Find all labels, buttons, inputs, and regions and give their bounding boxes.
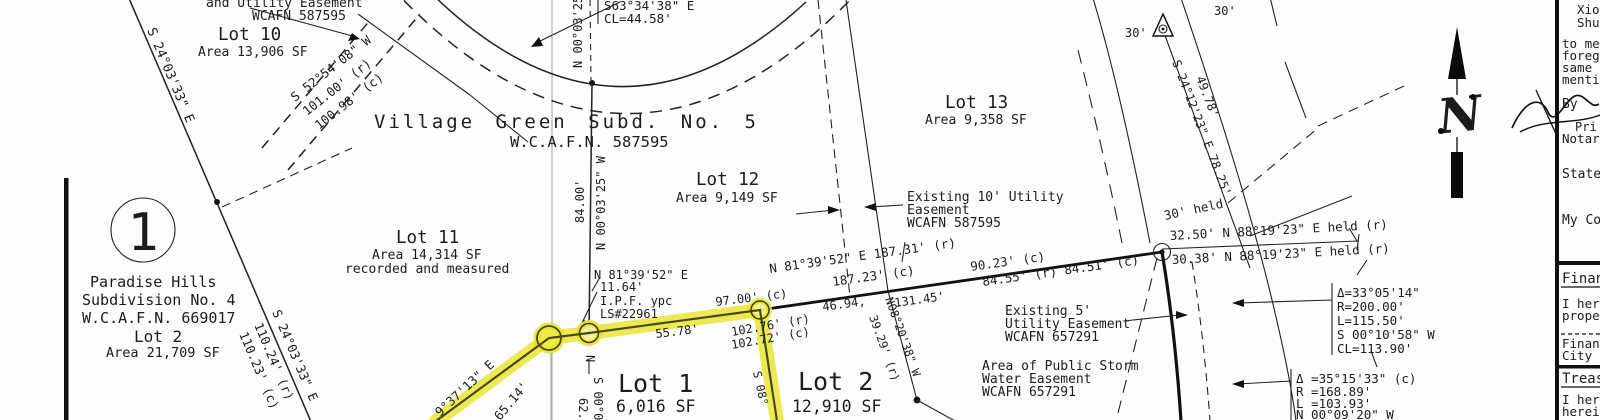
seg-b xyxy=(1285,62,1306,118)
tb-ack-4: menti xyxy=(1562,72,1600,87)
adjacent-area: Area 21,709 SF xyxy=(106,345,220,361)
lot11-note: recorded and measured xyxy=(345,262,509,277)
lot13-area: Area 9,358 SF xyxy=(925,113,1027,128)
left-border-bar xyxy=(64,178,69,420)
north-arrow-flourish-b xyxy=(1438,128,1444,134)
title-block-divider-1 xyxy=(1556,261,1600,265)
curve1-bearing: S 00°10'58" W xyxy=(1337,327,1435,342)
seg-a xyxy=(1270,0,1277,26)
curve1-arrowhead xyxy=(1232,299,1244,307)
dim-11-64: 11.64' xyxy=(600,280,643,294)
storm-line3: WCAFN 657291 xyxy=(982,385,1076,400)
curve-top-chord: CL=44.58' xyxy=(604,11,672,26)
ipf-label1: I.P.F. ypc xyxy=(600,294,672,308)
tb-state-fragment: State xyxy=(1562,167,1600,182)
north-arrow: N xyxy=(1433,27,1487,198)
subdivision-title: Village Green Subd. No. 5 xyxy=(374,111,759,133)
survey-point-dot xyxy=(214,199,220,205)
util10-arrowhead-a xyxy=(828,206,840,214)
radial-arrowhead xyxy=(531,37,543,47)
north-arrow-base-icon xyxy=(1451,152,1463,198)
lot1-name: Lot 1 xyxy=(618,369,693,398)
easement-top-line2: WCAFN 587595 xyxy=(252,9,346,24)
branch-dashed-line xyxy=(222,148,352,207)
monument-triangle-dot xyxy=(1162,28,1165,31)
util5-line3: WCAFN 657291 xyxy=(1005,330,1099,345)
title-block: Xio Shu to me forego same menti By Pri N… xyxy=(1512,0,1600,420)
bearing-n00: N 00°03'25" W xyxy=(594,155,608,250)
storm-line xyxy=(917,400,955,420)
lot2-name: Lot 2 xyxy=(798,367,873,396)
adjacent-name: Paradise Hills xyxy=(90,273,216,291)
tb-treasurer-heading: Treas xyxy=(1562,371,1600,387)
tb-finance-heading: Finan xyxy=(1562,271,1600,287)
lot12-area: Area 9,149 SF xyxy=(676,191,778,206)
lot12-name: Lot 12 xyxy=(696,170,759,190)
east-boundary-held xyxy=(1162,252,1181,420)
lot11-name: Lot 11 xyxy=(396,228,459,248)
title-block-border xyxy=(1555,0,1559,420)
dashed-corner xyxy=(1228,128,1318,203)
subdivision-recording: W.C.A.F.N. 587595 xyxy=(510,133,669,151)
curve1-radius: R=200.00' xyxy=(1337,299,1405,314)
north-arrow-flourish-a xyxy=(1470,94,1476,100)
dim-187-23: 187.23' (c) xyxy=(831,263,915,289)
adjacent-recording: W.C.A.F.N. 669017 xyxy=(82,309,236,327)
curve2-bearing: N 00°09'20" W xyxy=(1296,407,1394,420)
adjacent-subdivision: Subdivision No. 4 xyxy=(82,291,236,309)
frag-62: 62. xyxy=(576,398,590,420)
curve1-chord: CL=113.90' xyxy=(1337,341,1412,356)
dim-84: 84.00' xyxy=(573,180,587,223)
curve2-arrowhead xyxy=(1232,380,1244,388)
parcel-number: 1 xyxy=(127,203,158,263)
lot10-name: Lot 10 xyxy=(218,25,281,45)
dashed-sw-line xyxy=(1116,258,1157,420)
centerline-dashed xyxy=(590,0,591,80)
lot2-area: 12,910 SF xyxy=(792,397,881,416)
plat-drawing: and Utility Easement WCAFN 587595 Lot 10… xyxy=(0,0,1600,420)
title-block-divider-2 xyxy=(1556,365,1600,369)
dim-46-94: 46.94, xyxy=(821,294,866,314)
tb-finance-line2: proper xyxy=(1562,308,1600,323)
tb-treasurer-line2: herein xyxy=(1562,404,1600,419)
curve2-leader xyxy=(1238,381,1291,384)
tb-notary-fragment: Notary xyxy=(1562,131,1600,146)
lot1-area: 6,016 SF xyxy=(616,397,695,416)
road-dashed-west xyxy=(1078,50,1122,243)
held-slash-b xyxy=(1357,260,1367,275)
dashed-corner2 xyxy=(1318,86,1404,126)
signature-scrawl-3 xyxy=(1536,90,1556,134)
plat-labels: and Utility Easement WCAFN 587595 Lot 10… xyxy=(82,0,1435,420)
dim-131-45: 131.45' xyxy=(893,289,945,310)
tb-name-line2: Shu xyxy=(1577,15,1600,30)
bearing-n00-top: N 00°03'25 xyxy=(571,0,585,68)
dim-30-b: 30' xyxy=(1214,4,1236,18)
lot10-area: Area 13,906 SF xyxy=(198,45,308,60)
adjacent-lot: Lot 2 xyxy=(134,327,182,346)
lot11-area: Area 14,314 SF xyxy=(372,248,482,263)
util10-line3: WCAFN 587595 xyxy=(907,216,1001,231)
curve1-leader xyxy=(1238,300,1332,303)
lot13-name: Lot 13 xyxy=(945,93,1008,113)
tb-commission-fragment: My Co xyxy=(1562,213,1600,228)
dim-30-a: 30' xyxy=(1125,26,1147,40)
bearing-s24-top: S 24°03'33" E xyxy=(143,26,197,126)
tb-finance-sig2: City o xyxy=(1562,348,1600,363)
north-arrow-head-icon xyxy=(1448,27,1466,79)
frag-s00: S 00°0 xyxy=(591,377,605,420)
ipf-label2: LS#22961 xyxy=(600,307,658,321)
util5-dashed-line xyxy=(1192,262,1210,420)
curve1-length: L=115.50' xyxy=(1337,313,1405,328)
util10-arrowhead-b xyxy=(864,203,876,211)
north-arrow-letter: N xyxy=(1433,85,1487,146)
frag-n: N xyxy=(583,355,597,362)
curve1-delta: Δ=33°05'14" xyxy=(1337,285,1420,300)
util5-arrowhead xyxy=(1176,311,1188,319)
dim-30-held: 30' held xyxy=(1163,196,1225,223)
